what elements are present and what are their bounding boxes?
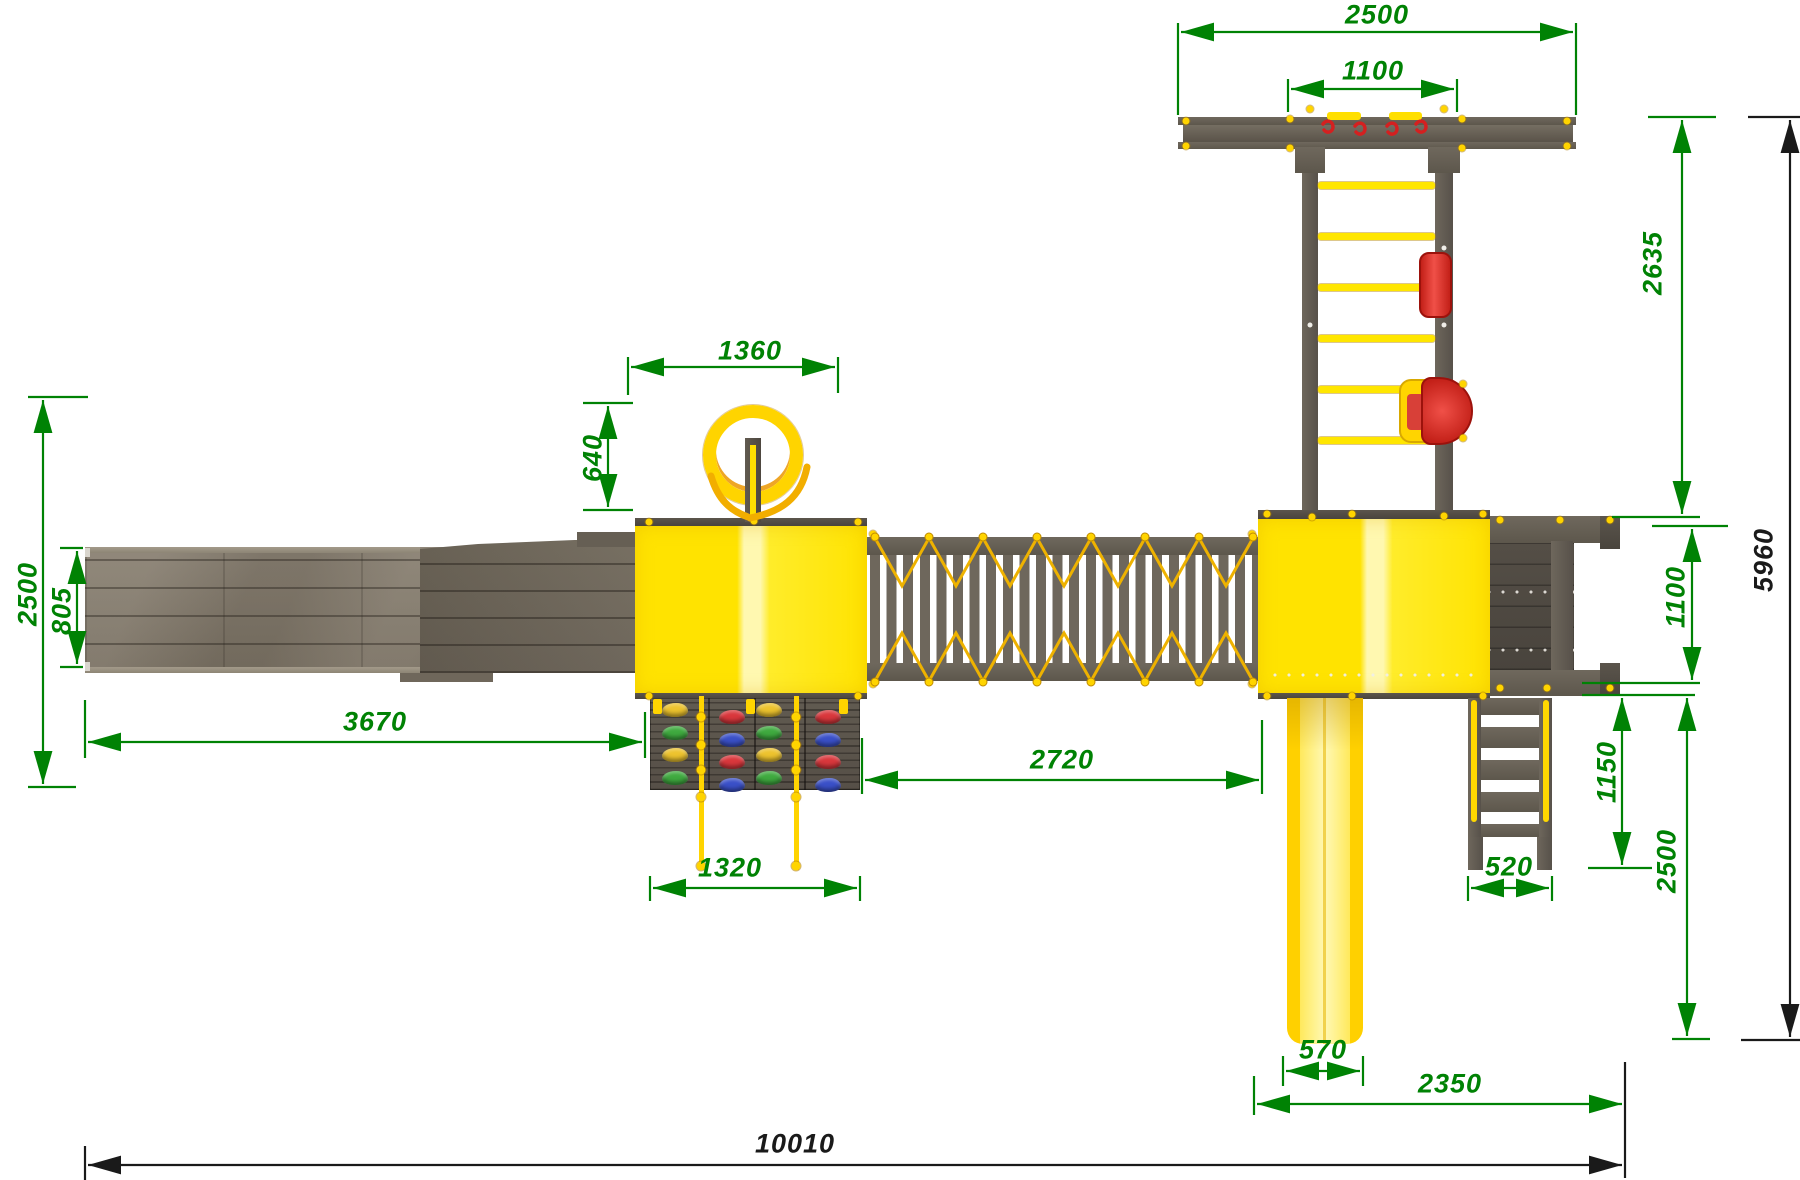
dimension-lines-green — [28, 23, 1728, 1115]
dim-label-stairs-width: 520 — [1485, 852, 1533, 883]
bridge-rope-knots — [871, 533, 1257, 686]
dim-label-climb-wall-width: 1320 — [698, 853, 762, 884]
dim-label-ring-offset: 640 — [578, 434, 609, 482]
ring-rope — [711, 467, 807, 518]
playground-drawing-canvas: 2500 1100 2635 5960 1360 640 2500 805 36… — [0, 0, 1800, 1180]
dimension-lines-black — [85, 117, 1800, 1180]
swing-hook — [1323, 121, 1426, 134]
dim-label-swing-ladder-length: 2635 — [1638, 231, 1669, 295]
dimension-lines-svg — [0, 0, 1800, 1180]
dim-label-ramp-length: 3670 — [343, 707, 407, 738]
dim-label-stairs-length: 1150 — [1592, 741, 1623, 803]
bridge-rope-lacing — [875, 538, 1253, 681]
dim-label-swing-beam-width: 2500 — [1345, 0, 1409, 31]
dim-label-slide-width: 570 — [1299, 1035, 1347, 1066]
dim-label-ramp-width: 805 — [47, 587, 78, 635]
dim-label-total-length: 10010 — [755, 1129, 835, 1160]
dim-label-left-module-depth: 2500 — [13, 562, 44, 626]
dim-label-right-module-length: 2350 — [1418, 1069, 1482, 1100]
dim-label-swing-hanger-span: 1100 — [1342, 56, 1404, 87]
dim-label-bridge-length: 2720 — [1030, 745, 1094, 776]
dim-label-balcony-depth: 1100 — [1661, 566, 1692, 628]
dim-label-right-module-depth: 2500 — [1652, 829, 1683, 893]
dim-label-ring-beam-span: 1360 — [718, 336, 782, 367]
dim-label-total-depth: 5960 — [1749, 528, 1780, 592]
